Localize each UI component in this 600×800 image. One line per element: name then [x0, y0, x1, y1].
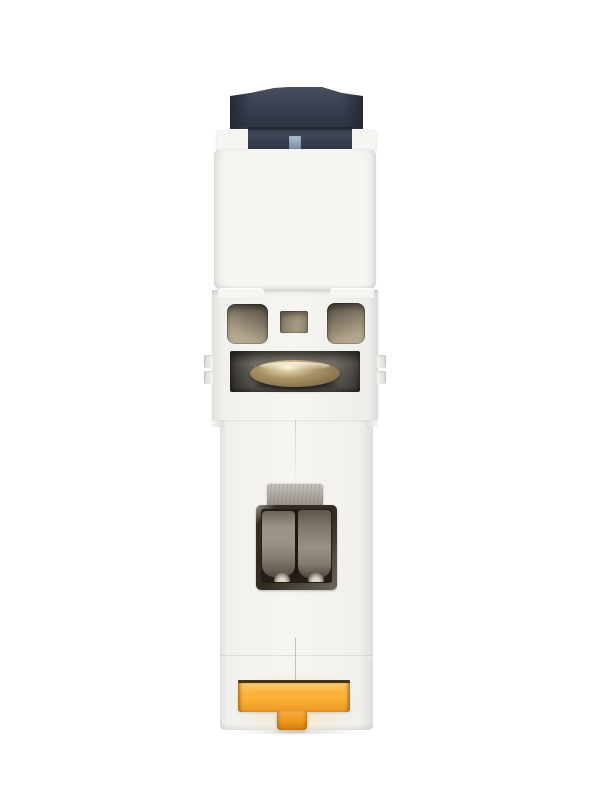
din-rail-clip-stem: [277, 711, 307, 730]
toggle-wing-shade-right: [337, 93, 363, 129]
toggle-indicator-window: [289, 136, 301, 149]
clamp-cavity: [261, 509, 332, 583]
toggle-slot-ear-right: [351, 130, 377, 150]
latch-notch-left-upper: [204, 355, 213, 368]
din-rail-clip-bar: [238, 680, 350, 712]
toggle-step-shadow: [248, 127, 352, 130]
terminal-screw-window: [230, 351, 360, 392]
vent-opening-left: [227, 304, 268, 344]
latch-notch-left-lower: [204, 371, 213, 384]
toggle-wing-shade-left: [230, 93, 256, 129]
clamp-jaw-left: [262, 511, 295, 577]
toggle-slot-ear-left: [216, 130, 249, 150]
product-photo: Side profile product photo of a white si…: [0, 0, 600, 800]
latch-notch-right-upper: [377, 355, 386, 368]
center-seam-upper: [295, 420, 296, 482]
clamp-divider: [295, 510, 298, 578]
housing-seam-horizontal: [220, 655, 373, 657]
vent-opening-center: [280, 311, 308, 333]
cable-clamp-window: [256, 505, 337, 590]
clamp-jaw-right: [298, 510, 331, 578]
housing-tab-right: [330, 288, 374, 298]
terminal-screw: [250, 360, 340, 387]
latch-notch-right-lower: [377, 371, 386, 384]
vent-opening-right: [327, 303, 365, 344]
clamp-notch-right: [308, 573, 324, 582]
face-plate: [214, 148, 376, 290]
housing-tab-left: [218, 288, 264, 298]
clamp-notch-left: [274, 573, 290, 582]
